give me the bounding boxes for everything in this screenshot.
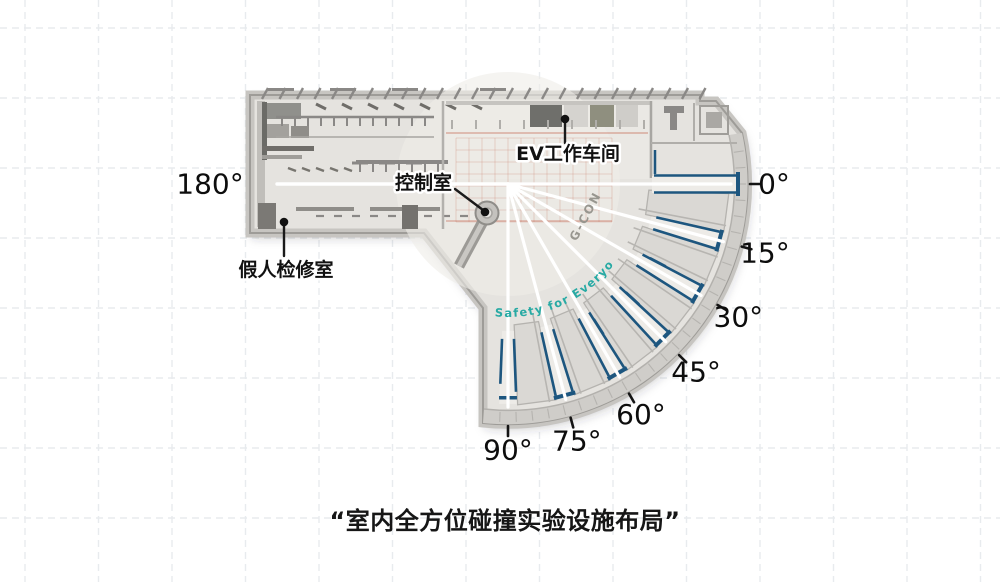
control-room-dot [481,208,490,217]
angle-label-75: 75° [552,424,602,457]
angle-label-0: 0° [758,168,790,201]
page-caption: “室内全方位碰撞实验设施布局” [329,507,680,535]
angle-label-45: 45° [671,356,721,389]
angle-label-60: 60° [616,398,666,431]
floorplan-svg: Safety for Everyone G-CON 控制室 EV工作车间 假人检… [0,0,1000,582]
ev-workshop-dot [561,115,570,124]
angle-label-180: 180° [176,168,243,201]
control-room-label: 控制室 [395,171,452,194]
angle-label-90: 90° [483,434,533,467]
dummy-room-label: 假人检修室 [238,258,333,281]
angle-label-15: 15° [740,236,790,269]
dummy-room-dot [280,218,289,227]
angle-label-30: 30° [714,301,764,334]
ev-workshop-label: EV工作车间 [516,142,620,165]
